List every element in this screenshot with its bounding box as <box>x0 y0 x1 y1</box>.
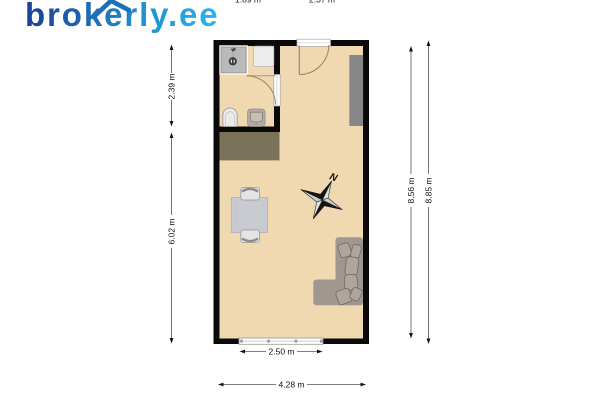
svg-text:2.39 m: 2.39 m <box>167 74 177 100</box>
svg-text:4.28 m: 4.28 m <box>279 380 305 390</box>
svg-text:8.56 m: 8.56 m <box>406 178 416 204</box>
svg-text:1.89 m: 1.89 m <box>235 0 261 5</box>
svg-text:2.37 m: 2.37 m <box>309 0 335 5</box>
svg-text:6.02 m: 6.02 m <box>167 219 177 245</box>
svg-text:8.85 m: 8.85 m <box>424 178 434 204</box>
svg-text:2.50 m: 2.50 m <box>269 347 295 357</box>
